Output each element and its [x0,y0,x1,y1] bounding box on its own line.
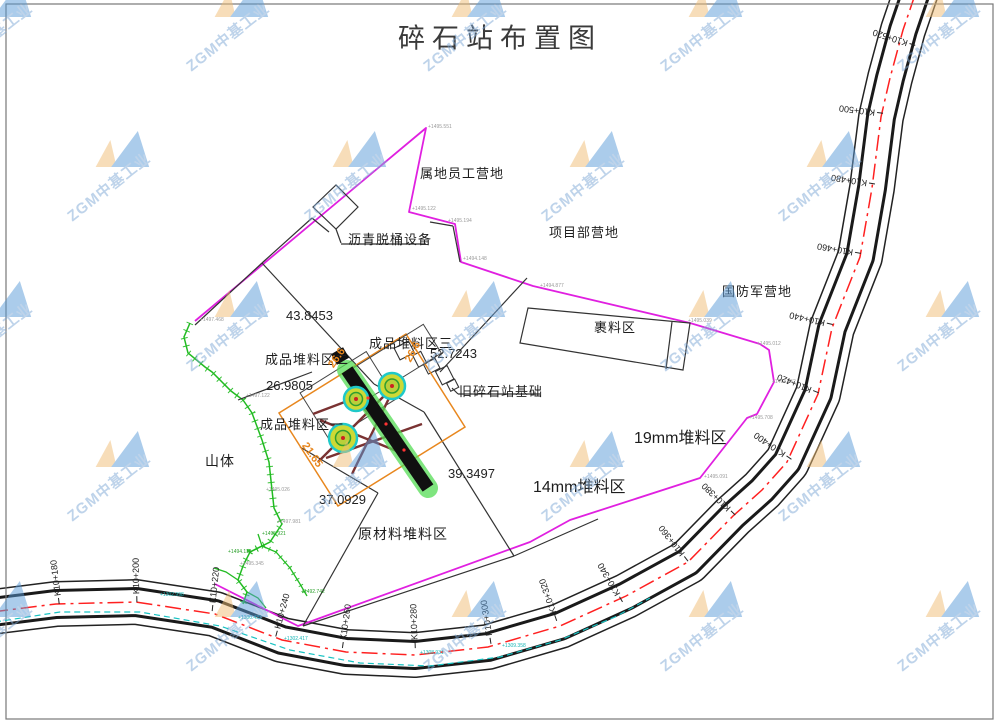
elevation-mark: +1497.981 [277,519,301,525]
elevation-mark: +1492.742 [301,589,325,595]
station-label: K10+280 [408,604,420,649]
area-label-asphalt-drum-unit: 沥青脱桶设备 [348,229,432,248]
elevation-mark: +1302.417 [284,636,308,642]
station-label: K10+200 [131,558,142,602]
area-label-project-dept-camp: 项目部营地 [549,222,619,241]
page-title: 碎石站布置图 [398,17,602,56]
elevation-mark: +1495.039 [688,318,712,324]
elevation-mark: +1302.998 [160,592,184,598]
area-label-pile-19mm: 19mm堆料区 [634,424,726,448]
elevation-mark: +1495.012 [757,341,781,347]
area-label-raw-material-pile: 原材料堆料区 [358,524,448,544]
area-label-pile-14mm: 14mm堆料区 [533,473,625,497]
elevation-mark: +1308.931 [420,650,444,656]
road [0,0,918,655]
dimension-label: 52.7243 [430,346,477,361]
crusher-station-layout-drawing: 碎石站布置图 属地员工营地 沥青脱桶设备 项目部营地 国防军营地 裹料区 成品堆… [0,0,1000,724]
elevation-mark: +1495.122 [412,206,436,212]
dimension-label: 37.0929 [319,492,366,507]
dimension-label: 26.9805 [266,378,313,393]
parcel-lines [195,185,690,626]
area-label-local-staff-camp: 属地员工营地 [420,163,504,182]
area-label-product-pile-1: 成品堆料区一 [260,414,344,433]
area-label-old-crusher-base: 旧碎石站基础 [459,381,543,400]
road-centerline [0,0,918,655]
elevation-mark: +1495.091 [704,474,728,480]
area-label-wrap-material-area: 裹料区 [594,317,636,336]
dimension-label: 43.8453 [286,308,333,323]
dimension-label: 39.3497 [448,466,495,481]
elevation-mark: +1495.551 [428,124,452,130]
elevation-mark: +1300.433 [238,615,262,621]
elevation-mark: +1495.708 [749,415,773,421]
area-label-mountain: 山体 [205,451,235,471]
elevation-mark: +1494.148 [463,256,487,262]
elevation-mark: +1495.026 [266,487,290,493]
area-label-defense-army-camp: 国防军营地 [722,281,792,300]
elevation-mark: +1495.345 [240,561,264,567]
elevation-mark: +1495.194 [448,218,472,224]
elevation-mark: +1497.468 [200,317,224,323]
elevation-mark: +1495.921 [262,531,286,537]
elevation-mark: +1309.358 [502,643,526,649]
elevation-mark: +1497.122 [246,393,270,399]
elevation-mark: +1494.877 [540,283,564,289]
elevation-mark: +1494.118 [228,549,251,555]
